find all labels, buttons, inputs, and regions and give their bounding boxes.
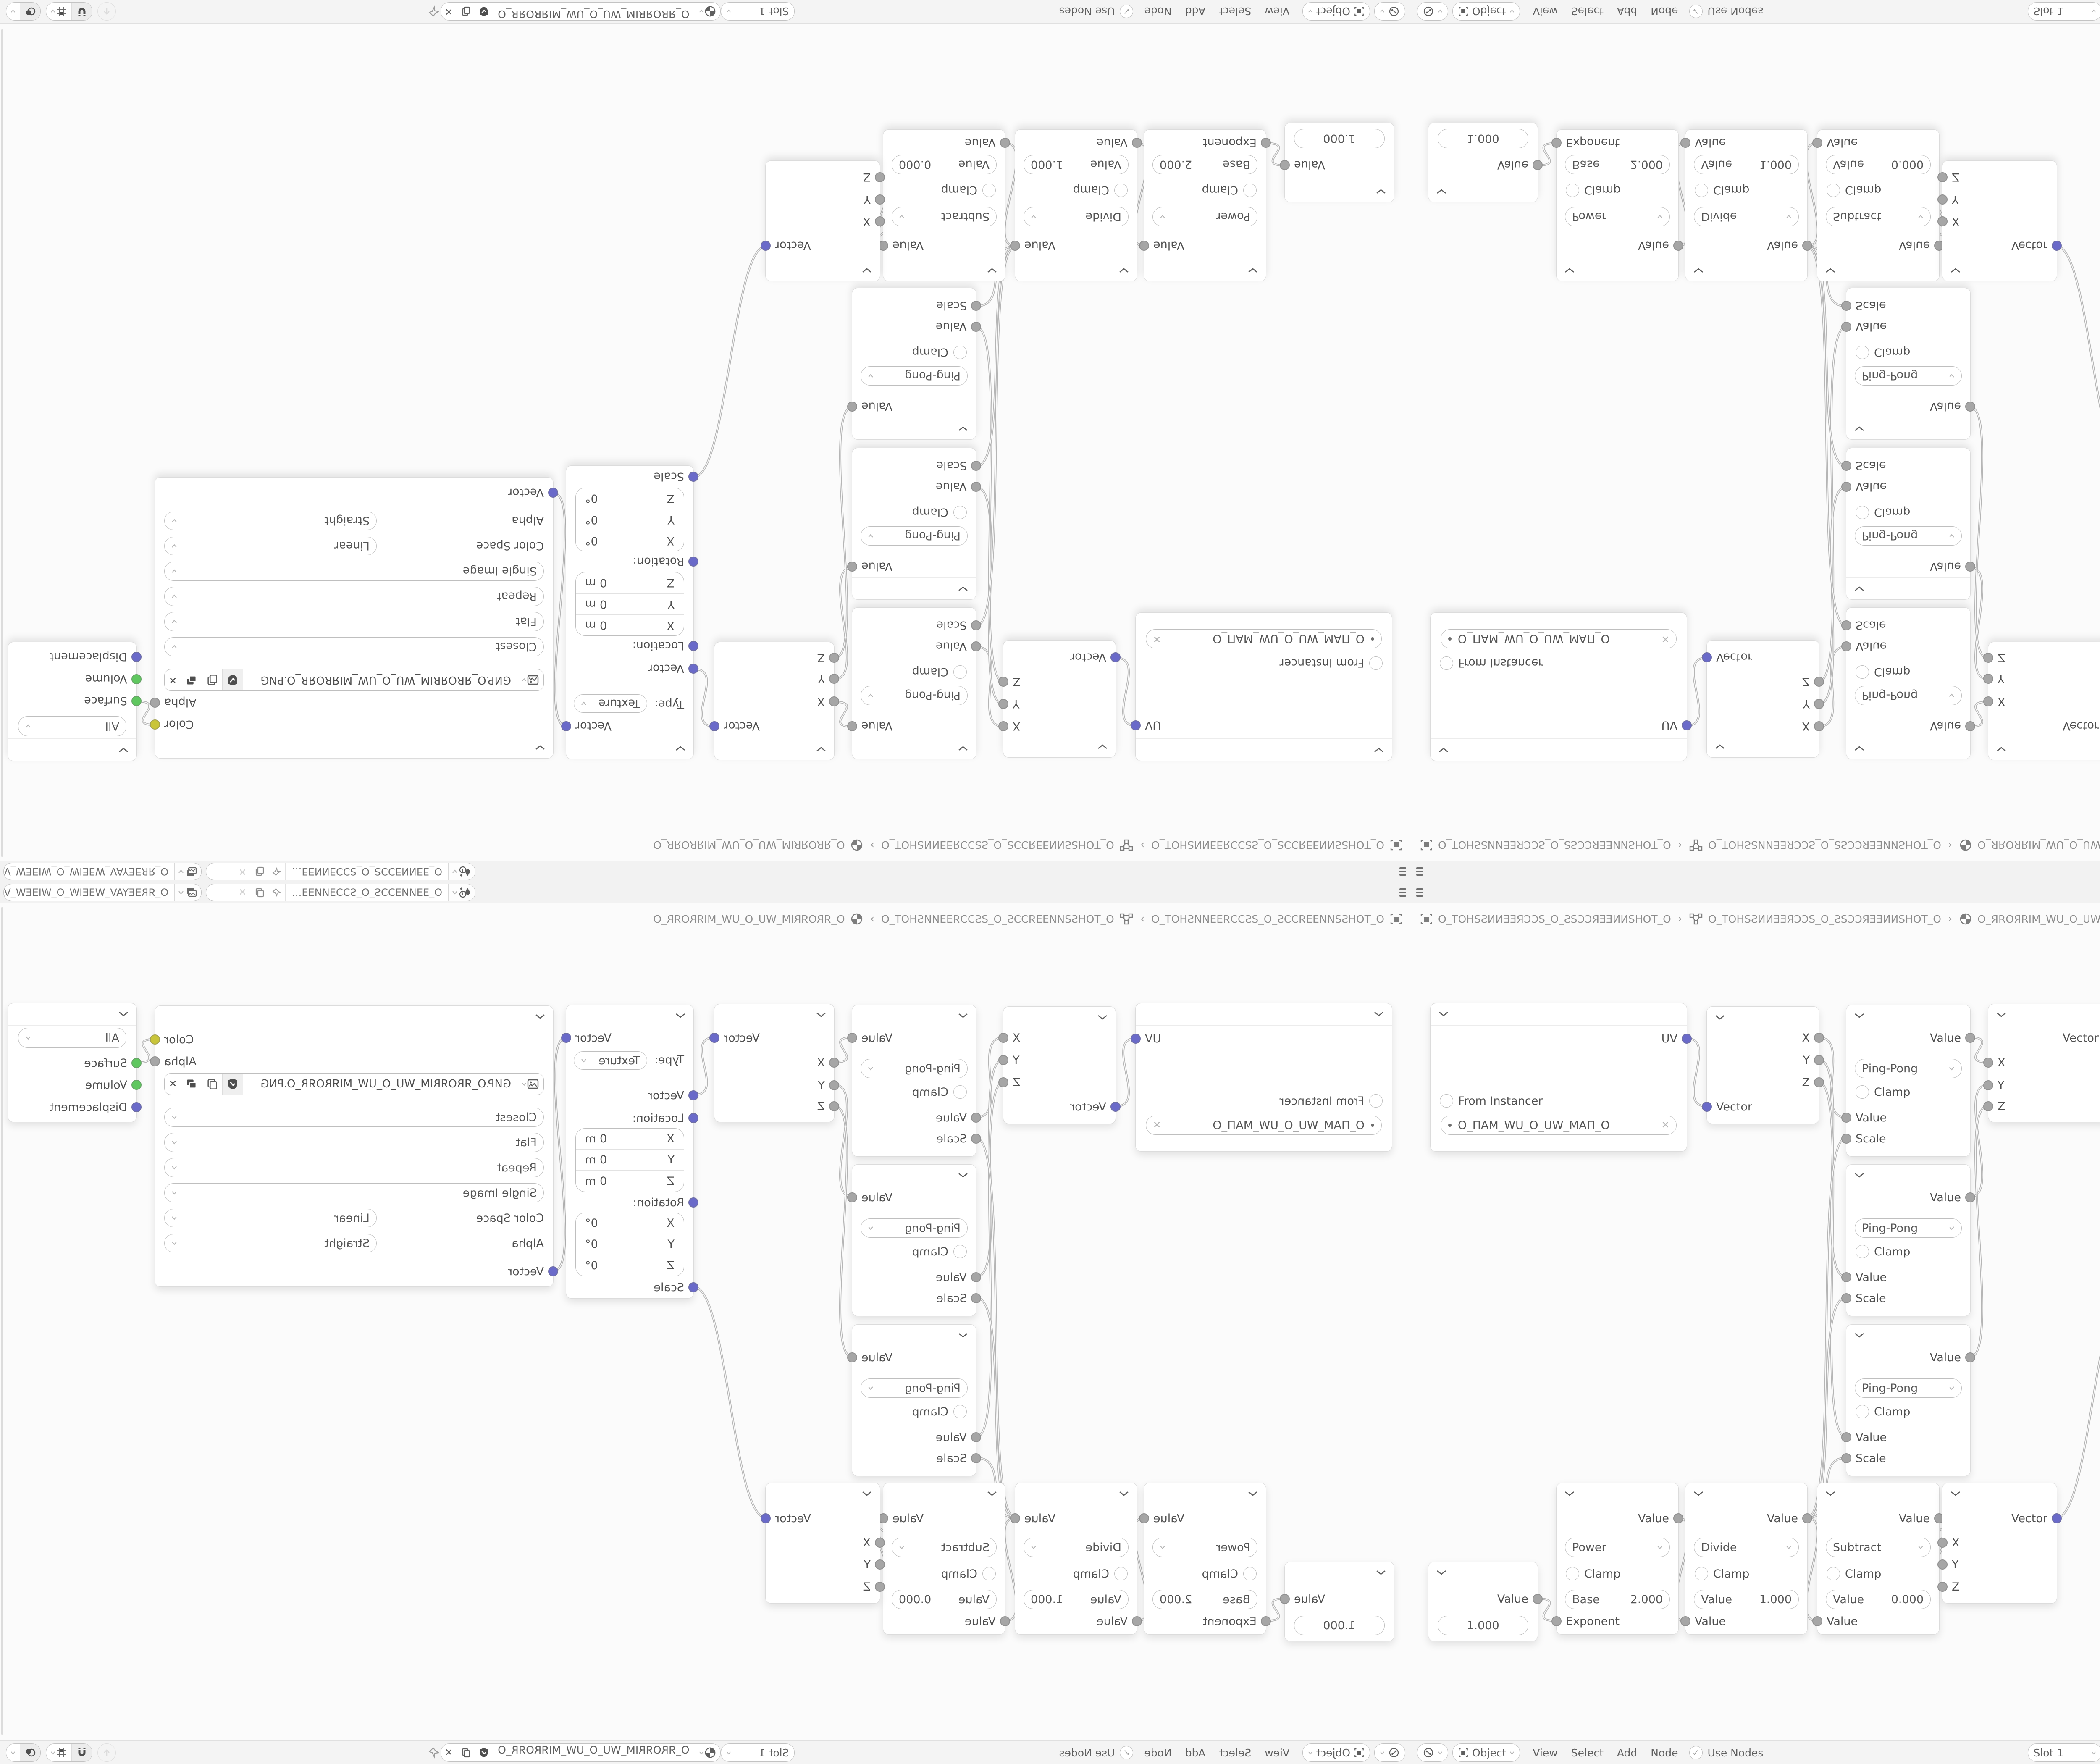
y-output-socket[interactable] — [1814, 1055, 1824, 1065]
alpha-mode-select[interactable]: Straight — [164, 1234, 377, 1252]
node-collapse-chevron-icon[interactable] — [766, 259, 880, 281]
scene-icon[interactable] — [448, 863, 475, 880]
value-output-socket[interactable] — [1010, 1513, 1020, 1523]
node-collapse-chevron-icon[interactable] — [1003, 735, 1116, 757]
z-input-socket[interactable] — [875, 1582, 885, 1592]
value-field[interactable]: 1.000 — [1438, 1616, 1528, 1635]
shader-editor-canvas[interactable]: O_TOHSƧͶИƎƎЯƆƆS_O_ƧSƆƆЯƎƎͶИSHOT_O › O_TO… — [1411, 903, 2100, 1740]
value-output-socket[interactable] — [1965, 1033, 1975, 1043]
editor-type-button[interactable] — [1417, 2, 1448, 21]
menu-select[interactable]: Select — [1564, 5, 1610, 18]
node-collapse-chevron-icon[interactable] — [1557, 1483, 1678, 1505]
value-output-socket[interactable] — [1802, 1513, 1812, 1523]
from-instancer-checkbox[interactable] — [1440, 656, 1453, 670]
value-output-socket[interactable] — [847, 1192, 857, 1202]
scale-input-socket[interactable] — [1841, 1453, 1851, 1463]
scale-input-socket[interactable] — [1841, 1293, 1851, 1303]
unlink-icon[interactable]: ✕ — [441, 3, 457, 20]
rotation-xyz-fields[interactable]: X0° Y0° Z0° — [575, 1213, 684, 1276]
source-select[interactable]: Single Image — [164, 562, 544, 581]
scene-icon[interactable] — [448, 884, 475, 901]
scale-input-socket[interactable] — [1841, 301, 1851, 311]
operation-select[interactable]: Power — [1152, 1538, 1257, 1557]
vector-output-socket[interactable] — [2052, 1513, 2062, 1523]
y-input-socket[interactable] — [1983, 674, 1993, 684]
node-combine-xyz[interactable]: Vector X Y Z — [714, 1004, 835, 1122]
node-collapse-chevron-icon[interactable] — [1144, 1483, 1266, 1505]
node-collapse-chevron-icon[interactable] — [1707, 1007, 1819, 1029]
x-output-socket[interactable] — [1814, 721, 1824, 731]
node-collapse-chevron-icon[interactable] — [1846, 1165, 1970, 1187]
value-output-socket[interactable] — [1673, 1513, 1683, 1523]
breadcrumb-material[interactable]: O_ЯROЯRIM_WU_O_UW_MIЯROЯR_O — [653, 913, 845, 925]
value-input-socket[interactable] — [971, 641, 981, 651]
vector-output-socket[interactable] — [709, 1033, 719, 1043]
operation-select[interactable]: Power — [1152, 207, 1257, 226]
uv-map-name-field[interactable]: O_ПAM_WU_O_UW_MAП_O ✕ — [1146, 629, 1382, 648]
view-layer-icon[interactable] — [174, 884, 201, 901]
node-collapse-chevron-icon[interactable] — [1015, 1483, 1137, 1505]
uv-output-socket[interactable] — [1131, 720, 1141, 730]
exponent-input-socket[interactable] — [1261, 138, 1271, 148]
snap-type-dropdown[interactable] — [46, 1744, 71, 1761]
location-xyz-fields[interactable]: X0 m Y0 m Z0 m — [575, 1128, 684, 1192]
node-collapse-chevron-icon[interactable] — [1136, 738, 1392, 761]
node-collapse-chevron-icon[interactable] — [852, 577, 976, 599]
from-instancer-checkbox[interactable] — [1369, 1094, 1383, 1108]
menu-select[interactable]: Select — [1564, 1747, 1610, 1759]
node-collapse-chevron-icon[interactable] — [1685, 1483, 1807, 1505]
node-collapse-chevron-icon[interactable] — [1846, 737, 1970, 759]
value-input-socket[interactable] — [1680, 1616, 1690, 1626]
slot-select[interactable]: Slot 1 — [2028, 1743, 2100, 1762]
node-math-ping-pong-1[interactable]: Value Ping-Pong Clamp Value Scale — [852, 607, 976, 759]
view-layer-selector[interactable]: O_ЯRƎEYAV_WƎEIW_O_WIƎEW_VAYƎERЯ_O ✕ — [3, 884, 202, 901]
value-input-socket[interactable] — [971, 1113, 981, 1123]
value-field[interactable]: 1.000 — [1294, 1616, 1385, 1635]
node-collapse-chevron-icon[interactable] — [155, 1006, 553, 1028]
new-copy-icon[interactable] — [457, 3, 475, 20]
location-input-socket[interactable] — [688, 1113, 698, 1123]
node-collapse-chevron-icon[interactable] — [852, 1325, 976, 1347]
node-math-subtract[interactable]: Value Subtract Clamp Value0.000 Value — [883, 129, 1005, 281]
node-collapse-chevron-icon[interactable] — [852, 417, 976, 439]
z-output-socket[interactable] — [998, 677, 1008, 687]
uv-map-name-field[interactable]: O_ПAM_WU_O_UW_MAП_O ✕ — [1441, 1116, 1677, 1135]
use-nodes-checkbox[interactable]: ✓ — [1120, 5, 1133, 18]
node-collapse-chevron-icon[interactable] — [1817, 259, 1939, 281]
menu-select[interactable]: Select — [1212, 5, 1258, 18]
clamp-checkbox[interactable] — [1827, 184, 1840, 197]
operation-select[interactable]: Ping-Pong — [1855, 686, 1962, 705]
node-collapse-chevron-icon[interactable] — [1285, 1562, 1394, 1584]
scene-name[interactable]: O_ƎƎͶИƎƆƆS_O_SƆƆƎИͶƎƎ… — [286, 887, 448, 898]
use-nodes-checkbox[interactable]: ✓ — [1120, 1746, 1133, 1759]
operation-select[interactable]: Power — [1565, 1538, 1670, 1557]
value-field[interactable]: Value0.000 — [1826, 155, 1931, 174]
node-math-power[interactable]: Value Power Clamp Base2.000 Exponent — [1144, 1483, 1266, 1635]
fake-user-shield-icon[interactable] — [222, 669, 243, 690]
vector-output-socket[interactable] — [761, 1513, 771, 1523]
node-math-divide[interactable]: Value Divide Clamp Value1.000 Value — [1015, 1483, 1137, 1635]
y-output-socket[interactable] — [998, 699, 1008, 709]
vector-output-socket[interactable] — [2052, 241, 2062, 251]
menu-node[interactable]: Node — [1137, 1747, 1178, 1759]
scale-input-socket[interactable] — [1841, 620, 1851, 630]
fake-user-shield-icon[interactable] — [475, 3, 493, 20]
breadcrumb-scene[interactable]: O_TOHSƧͶИƎƎЯƆƆS_O_ƧSƆƆЯƎƎͶИSHOT_O — [1151, 913, 1384, 925]
value-field[interactable]: Value1.000 — [1694, 155, 1799, 174]
z-input-socket[interactable] — [1937, 172, 1948, 182]
node-math-ping-pong-2[interactable]: Value Ping-Pong Clamp Value Scale — [1846, 448, 1971, 600]
fake-user-shield-icon[interactable] — [475, 1744, 493, 1761]
node-combine-xyz[interactable]: Vector X Y Z — [1988, 1004, 2100, 1122]
projection-select[interactable]: Flat — [164, 612, 544, 631]
node-uv-map[interactable]: UV From Instancer O_ПAM_WU_O_UW_MAП_O ✕ — [1430, 612, 1687, 761]
scale-input-socket[interactable] — [971, 461, 981, 471]
clamp-checkbox[interactable] — [953, 1085, 967, 1099]
menu-node[interactable]: Node — [1137, 5, 1178, 18]
menu-add[interactable]: Add — [1179, 5, 1212, 18]
image-datablock-widget[interactable]: GИP.O_ЯROЯRIM_WU_O_UW_MIЯROЯR_O.PNG ✕ — [164, 669, 544, 691]
rotation-xyz-fields[interactable]: X0° Y0° Z0° — [575, 488, 684, 551]
node-math-ping-pong-2[interactable]: Value Ping-Pong Clamp Value Scale — [1846, 1164, 1971, 1316]
value-output-socket[interactable] — [847, 721, 857, 731]
editor-type-button[interactable] — [1374, 2, 1405, 21]
y-input-socket[interactable] — [1983, 1080, 1993, 1090]
node-math-power[interactable]: Value Power Clamp Base2.000 Exponent — [1144, 129, 1266, 281]
overlays-icon[interactable] — [20, 1744, 40, 1761]
shader-mode-select[interactable]: Object — [1302, 2, 1370, 21]
rotation-input-socket[interactable] — [688, 556, 698, 567]
volume-input-socket[interactable] — [131, 674, 142, 684]
pin-icon[interactable] — [428, 1746, 441, 1759]
vector-input-socket[interactable] — [688, 664, 698, 674]
base-field[interactable]: Base2.000 — [1565, 1590, 1670, 1609]
value-input-socket[interactable] — [1812, 1616, 1822, 1626]
clamp-checkbox[interactable] — [1856, 1245, 1869, 1258]
breadcrumb-scene[interactable]: O_TOHSƧͶИƎƎЯƆƆS_O_ƧSƆƆЯƎƎͶИSHOT_O — [1151, 839, 1384, 851]
operation-select[interactable]: Ping-Pong — [861, 366, 968, 386]
value-output-socket[interactable] — [1280, 1594, 1290, 1604]
material-browse-icon[interactable] — [695, 1744, 720, 1761]
value-output-socket[interactable] — [847, 1352, 857, 1362]
unlink-icon[interactable]: ✕ — [441, 1744, 457, 1761]
x-input-socket[interactable] — [1937, 1538, 1948, 1548]
z-input-socket[interactable] — [829, 1101, 839, 1111]
value-output-socket[interactable] — [1965, 402, 1975, 412]
breadcrumb-scene[interactable]: O_TOHSƧͶИƎƎЯƆƆS_O_ƧSƆƆЯƎƎͶИSHOT_O — [1438, 839, 1671, 851]
node-collapse-chevron-icon[interactable] — [852, 1005, 976, 1027]
clamp-checkbox[interactable] — [1566, 184, 1579, 197]
unlink-icon[interactable]: ✕ — [165, 669, 181, 690]
scale-input-socket[interactable] — [971, 1293, 981, 1303]
color-output-socket[interactable] — [150, 1034, 160, 1045]
operation-select[interactable]: Divide — [1694, 207, 1799, 226]
value-output-socket[interactable] — [1533, 1594, 1543, 1604]
shader-editor-canvas[interactable]: O_TOHSƧͶИƎƎЯƆƆS_O_ƧSƆƆЯƎƎͶИSHOT_O › O_TO… — [0, 903, 1411, 1740]
node-collapse-chevron-icon[interactable] — [1431, 738, 1687, 761]
clamp-checkbox[interactable] — [982, 184, 996, 197]
surface-input-socket[interactable] — [131, 696, 142, 706]
node-collapse-chevron-icon[interactable] — [566, 1005, 693, 1027]
menu-add[interactable]: Add — [1610, 1747, 1644, 1759]
breadcrumb-object[interactable]: O_TOHSƧͶИƎƎЯƆƆS_O_ƧSƆƆЯƎƎͶИSHOT_O — [1708, 913, 1941, 925]
slot-select[interactable]: Slot 1 — [721, 2, 795, 21]
value-input-socket[interactable] — [1812, 138, 1822, 148]
snap-type-dropdown[interactable] — [46, 3, 71, 20]
operation-select[interactable]: Subtract — [1826, 1538, 1931, 1557]
fake-user-shield-icon[interactable] — [222, 1074, 243, 1095]
menu-view[interactable]: View — [1258, 1747, 1296, 1759]
menu-view[interactable]: View — [1526, 1747, 1564, 1759]
new-copy-icon[interactable] — [251, 884, 268, 901]
shader-mode-select[interactable]: Object — [1302, 1743, 1370, 1762]
node-math-ping-pong-3[interactable]: Value Ping-Pong Clamp Value Scale — [1846, 288, 1971, 440]
color-output-socket[interactable] — [150, 719, 160, 730]
node-collapse-chevron-icon[interactable] — [1846, 1005, 1970, 1027]
value-field[interactable]: Value1.000 — [1024, 1590, 1129, 1609]
value-input-socket[interactable] — [1841, 322, 1851, 332]
operation-select[interactable]: Divide — [1024, 207, 1129, 226]
material-name[interactable]: O_ЯROЯRIM_WU_O_UW_MIЯROЯR_O — [493, 3, 694, 20]
material-name[interactable]: O_ЯROЯRIM_WU_O_UW_MIЯROЯR_O — [493, 1744, 694, 1761]
value-input-socket[interactable] — [971, 1432, 981, 1442]
node-value[interactable]: Value 1.000 — [1284, 1562, 1394, 1641]
x-input-socket[interactable] — [829, 1058, 839, 1068]
operation-select[interactable]: Ping-Pong — [1855, 1059, 1962, 1078]
node-collapse-chevron-icon[interactable] — [1942, 259, 2057, 281]
slot-select[interactable]: Slot 1 — [721, 1743, 795, 1762]
vector-input-socket[interactable] — [1702, 652, 1712, 662]
x-input-socket[interactable] — [875, 216, 885, 226]
node-collapse-chevron-icon[interactable] — [1988, 738, 2100, 760]
pack-icon[interactable] — [181, 1074, 202, 1095]
clamp-checkbox[interactable] — [1856, 1405, 1869, 1418]
uv-map-name-field[interactable]: O_ПAM_WU_O_UW_MAП_O ✕ — [1441, 629, 1677, 648]
node-collapse-chevron-icon[interactable] — [1942, 1483, 2057, 1505]
node-image-texture[interactable]: Color Alpha GИP.O_ЯROЯRIM_WU_O_UW_MIЯROЯ… — [155, 477, 554, 759]
node-collapse-chevron-icon[interactable] — [1846, 1325, 1970, 1347]
node-combine-xyz[interactable]: Vector X Y Z — [1942, 1483, 2057, 1604]
clamp-checkbox[interactable] — [1856, 506, 1869, 519]
z-output-socket[interactable] — [998, 1077, 1008, 1087]
operation-select[interactable]: Power — [1565, 207, 1670, 226]
value-input-socket[interactable] — [1841, 1272, 1851, 1282]
shader-editor-canvas[interactable]: O_TOHSƧͶИƎƎЯƆƆS_O_ƧSƆƆЯƎƎͶИSHOT_O › O_TO… — [1411, 24, 2100, 861]
node-math-ping-pong-2[interactable]: Value Ping-Pong Clamp Value Scale — [852, 448, 976, 600]
node-math-ping-pong-1[interactable]: Value Ping-Pong Clamp Value Scale — [1846, 1005, 1971, 1157]
material-datablock-widget[interactable]: O_ЯROЯRIM_WU_O_UW_MIЯROЯR_O ✕ — [441, 2, 721, 21]
node-collapse-chevron-icon[interactable] — [1846, 577, 1970, 599]
scale-input-socket[interactable] — [971, 620, 981, 630]
node-uv-map[interactable]: UV From Instancer O_ПAM_WU_O_UW_MAП_O ✕ — [1135, 612, 1392, 761]
use-nodes-checkbox[interactable]: ✓ — [1689, 1746, 1703, 1759]
operation-select[interactable]: Ping-Pong — [1855, 526, 1962, 546]
clear-icon[interactable]: ✕ — [1662, 1121, 1669, 1130]
value-output-socket[interactable] — [847, 1033, 857, 1043]
node-material-output[interactable]: All Surface Volume Displacement — [8, 1003, 137, 1122]
node-value[interactable]: Value 1.000 — [1428, 1562, 1538, 1641]
uv-map-name-field[interactable]: O_ПAM_WU_O_UW_MAП_O ✕ — [1146, 1116, 1382, 1135]
x-input-socket[interactable] — [829, 696, 839, 706]
clear-icon[interactable]: ✕ — [1662, 634, 1669, 644]
color-space-select[interactable]: Linear — [164, 537, 377, 555]
node-math-divide[interactable]: Value Divide Clamp Value1.000 Value — [1685, 129, 1808, 281]
projection-select[interactable]: Flat — [164, 1133, 544, 1152]
node-collapse-chevron-icon[interactable] — [8, 1003, 136, 1026]
node-collapse-chevron-icon[interactable] — [714, 738, 834, 760]
value-input-socket[interactable] — [1132, 138, 1142, 148]
unlink-icon[interactable]: ✕ — [234, 884, 251, 901]
x-output-socket[interactable] — [998, 721, 1008, 731]
pin-icon[interactable] — [428, 5, 441, 18]
y-input-socket[interactable] — [1937, 1559, 1948, 1570]
value-output-socket[interactable] — [847, 562, 857, 572]
z-input-socket[interactable] — [829, 653, 839, 663]
view-layer-name[interactable]: O_ЯRƎEYAV_WƎEIW_O_WIƎEW_VAYƎERЯ_O — [3, 887, 174, 898]
location-input-socket[interactable] — [688, 641, 698, 651]
volume-input-socket[interactable] — [131, 1080, 142, 1090]
clamp-checkbox[interactable] — [953, 346, 967, 359]
alpha-output-socket[interactable] — [150, 1056, 160, 1066]
node-mapping[interactable]: Vector Type: Texture Vector Location: X0… — [566, 465, 694, 759]
location-xyz-fields[interactable]: X0 m Y0 m Z0 m — [575, 572, 684, 636]
node-math-power[interactable]: Value Power Clamp Base2.000 Exponent — [1556, 1483, 1679, 1635]
node-math-subtract[interactable]: Value Subtract Clamp Value0.000 Value — [1817, 1483, 1940, 1635]
scene-selector[interactable]: O_ƎƎͶИƎƆƆS_O_SƆƆƎИͶƎƎ… ✕ — [206, 884, 475, 901]
parent-tree-button[interactable] — [97, 1743, 116, 1762]
node-collapse-chevron-icon[interactable] — [1015, 259, 1137, 281]
menu-hamburger-icon[interactable] — [1416, 888, 1423, 897]
vector-input-socket[interactable] — [548, 1266, 558, 1276]
menu-view[interactable]: View — [1526, 5, 1564, 18]
new-copy-icon[interactable] — [457, 1744, 475, 1761]
color-space-select[interactable]: Linear — [164, 1209, 377, 1227]
interpolation-select[interactable]: Closest — [164, 1108, 544, 1127]
value-output-socket[interactable] — [1965, 1352, 1975, 1362]
material-datablock-widget[interactable]: O_ЯROЯRIM_WU_O_UW_MIЯROЯR_O ✕ — [441, 1743, 721, 1762]
node-collapse-chevron-icon[interactable] — [1846, 417, 1970, 439]
node-collapse-chevron-icon[interactable] — [852, 737, 976, 759]
node-collapse-chevron-icon[interactable] — [852, 1165, 976, 1187]
vector-output-socket[interactable] — [709, 721, 719, 731]
node-image-texture[interactable]: Color Alpha GИP.O_ЯROЯRIM_WU_O_UW_MIЯROЯ… — [155, 1005, 554, 1287]
parent-tree-button[interactable] — [97, 2, 116, 21]
shader-mode-select[interactable]: Object — [1452, 2, 1520, 21]
menu-hamburger-icon[interactable] — [1399, 867, 1406, 876]
value-output-socket[interactable] — [1965, 721, 1975, 731]
breadcrumb-object[interactable]: O_TOHSƧͶИƎƎЯƆƆS_O_ƧSƆƆЯƎƎͶИSHOT_O — [1708, 839, 1941, 851]
clamp-checkbox[interactable] — [1856, 1085, 1869, 1099]
operation-select[interactable]: Ping-Pong — [1855, 1378, 1962, 1398]
value-output-socket[interactable] — [1280, 160, 1290, 170]
node-collapse-chevron-icon[interactable] — [1136, 1003, 1392, 1026]
image-browse-icon[interactable] — [517, 1074, 543, 1095]
scene-selector[interactable]: O_ƎƎͶИƎƆƆS_O_SƆƆƎИͶƎƎ… ✕ — [206, 863, 475, 880]
clamp-checkbox[interactable] — [953, 1405, 967, 1418]
value-input-socket[interactable] — [1841, 1432, 1851, 1442]
scale-input-socket[interactable] — [1841, 461, 1851, 471]
operation-select[interactable]: Divide — [1024, 1538, 1129, 1557]
y-output-socket[interactable] — [998, 1055, 1008, 1065]
node-math-ping-pong-1[interactable]: Value Ping-Pong Clamp Value Scale — [1846, 607, 1971, 759]
scale-input-socket[interactable] — [971, 301, 981, 311]
node-combine-xyz[interactable]: Vector X Y Z — [1942, 160, 2057, 281]
node-collapse-chevron-icon[interactable] — [1817, 1483, 1939, 1505]
node-mapping[interactable]: Vector Type: Texture Vector Location: X0… — [566, 1005, 694, 1299]
scale-input-socket[interactable] — [688, 472, 698, 482]
node-math-ping-pong-3[interactable]: Value Ping-Pong Clamp Value Scale — [1846, 1324, 1971, 1476]
node-separate-xyz[interactable]: X Y Z Vector — [1003, 1006, 1116, 1124]
source-select[interactable]: Single Image — [164, 1183, 544, 1202]
node-collapse-chevron-icon[interactable] — [883, 259, 1005, 281]
x-input-socket[interactable] — [1983, 1058, 1993, 1068]
overlays-icon[interactable] — [20, 3, 40, 20]
node-combine-xyz[interactable]: Vector X Y Z — [765, 1483, 880, 1604]
node-math-ping-pong-3[interactable]: Value Ping-Pong Clamp Value Scale — [852, 1324, 976, 1476]
pin-icon[interactable] — [268, 884, 286, 901]
mapping-type-select[interactable]: Texture — [574, 694, 647, 713]
node-value[interactable]: Value 1.000 — [1284, 123, 1394, 202]
node-collapse-chevron-icon[interactable] — [1428, 1562, 1538, 1584]
clamp-checkbox[interactable] — [1243, 184, 1257, 197]
value-input-socket[interactable] — [1000, 138, 1010, 148]
scrollbar[interactable] — [1, 907, 3, 1735]
view-layer-selector[interactable]: O_ЯRƎEYAV_WƎEIW_O_WIƎEW_VAYƎERЯ_O ✕ — [3, 863, 202, 880]
z-input-socket[interactable] — [1983, 1101, 1993, 1111]
node-math-subtract[interactable]: Value Subtract Clamp Value0.000 Value — [1817, 129, 1940, 281]
clamp-checkbox[interactable] — [1856, 346, 1869, 359]
value-field[interactable]: Value0.000 — [892, 155, 997, 174]
node-collapse-chevron-icon[interactable] — [714, 1004, 834, 1026]
overlays-dropdown[interactable] — [6, 1744, 20, 1761]
exponent-input-socket[interactable] — [1551, 1616, 1562, 1626]
extension-select[interactable]: Repeat — [164, 1158, 544, 1177]
unlink-icon[interactable]: ✕ — [165, 1074, 181, 1095]
operation-select[interactable]: Subtract — [892, 1538, 997, 1557]
node-separate-xyz[interactable]: X Y Z Vector — [1003, 640, 1116, 758]
clamp-checkbox[interactable] — [982, 1567, 996, 1580]
value-input-socket[interactable] — [971, 1272, 981, 1282]
scene-name[interactable]: O_ƎƎͶИƎƆƆS_O_SƆƆƎИͶƎƎ… — [286, 866, 448, 877]
image-browse-icon[interactable] — [517, 669, 543, 690]
new-copy-icon[interactable] — [202, 669, 222, 690]
z-input-socket[interactable] — [875, 172, 885, 182]
node-value[interactable]: Value 1.000 — [1428, 123, 1538, 202]
clamp-checkbox[interactable] — [1114, 1567, 1128, 1580]
value-output-socket[interactable] — [1965, 562, 1975, 572]
scale-input-socket[interactable] — [1841, 1134, 1851, 1144]
value-input-socket[interactable] — [971, 322, 981, 332]
breadcrumb-object[interactable]: O_TOHSƧͶИƎƎЯƆƆS_O_ƧSƆƆЯƎƎͶИSHOT_O — [881, 913, 1114, 925]
node-uv-map[interactable]: UV From Instancer O_ПAM_WU_O_UW_MAП_O ✕ — [1135, 1003, 1392, 1152]
editor-type-button[interactable] — [1417, 1743, 1448, 1762]
node-collapse-chevron-icon[interactable] — [1557, 259, 1678, 281]
clamp-checkbox[interactable] — [1243, 1567, 1257, 1580]
value-field[interactable]: Value0.000 — [892, 1590, 997, 1609]
base-field[interactable]: Base2.000 — [1152, 1590, 1257, 1609]
exponent-input-socket[interactable] — [1551, 138, 1562, 148]
node-separate-xyz[interactable]: X Y Z Vector — [1706, 1006, 1819, 1124]
value-output-socket[interactable] — [1802, 241, 1812, 251]
z-output-socket[interactable] — [1814, 677, 1824, 687]
node-collapse-chevron-icon[interactable] — [883, 1483, 1005, 1505]
node-math-ping-pong-3[interactable]: Value Ping-Pong Clamp Value Scale — [852, 288, 976, 440]
node-collapse-chevron-icon[interactable] — [1003, 1007, 1116, 1029]
value-field[interactable]: Value1.000 — [1024, 155, 1129, 174]
value-field[interactable]: 1.000 — [1438, 129, 1528, 148]
